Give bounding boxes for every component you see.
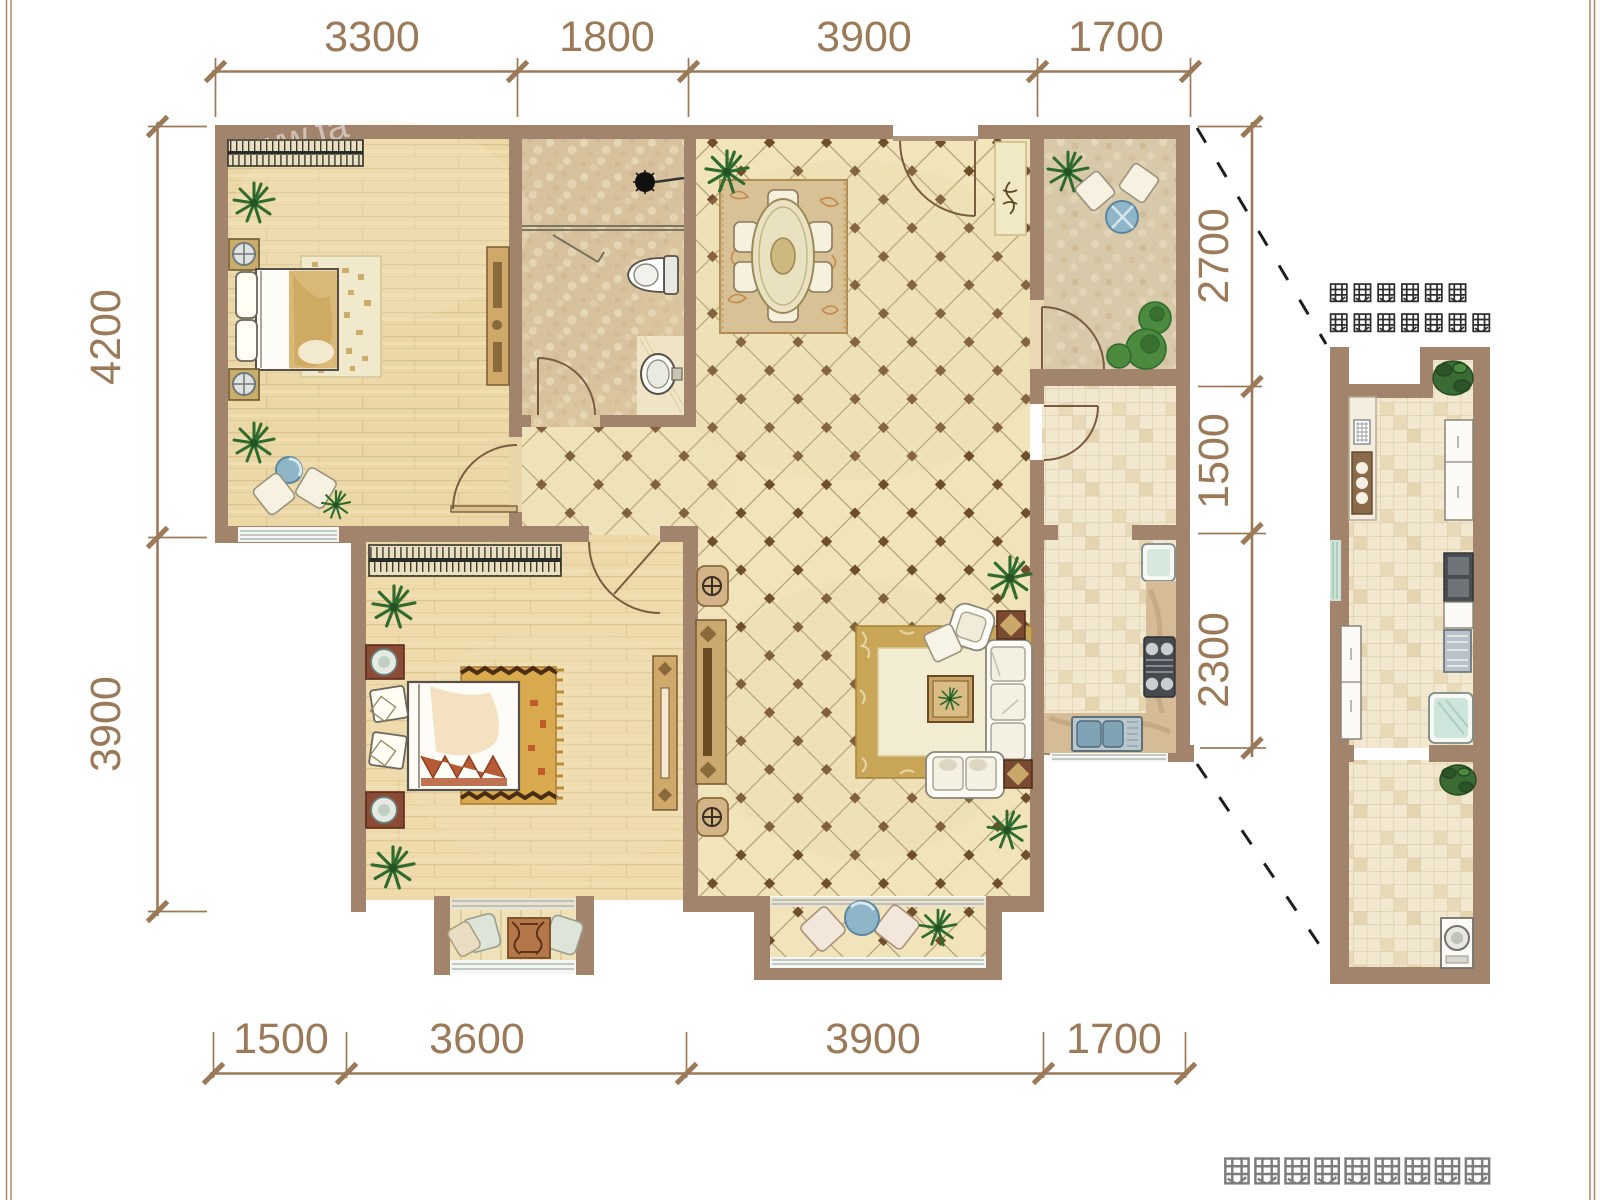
svg-text:4200: 4200 — [82, 289, 130, 385]
svg-text:3900: 3900 — [82, 676, 130, 772]
svg-text:3600: 3600 — [429, 1015, 525, 1063]
svg-text:1700: 1700 — [1068, 13, 1164, 61]
svg-text:3300: 3300 — [324, 13, 420, 61]
svg-text:1500: 1500 — [233, 1015, 329, 1063]
svg-text:1800: 1800 — [559, 13, 655, 61]
svg-text:1700: 1700 — [1066, 1015, 1162, 1063]
svg-text:3900: 3900 — [825, 1015, 921, 1063]
svg-text:2700: 2700 — [1190, 208, 1238, 304]
svg-text:3900: 3900 — [816, 13, 912, 61]
svg-text:1500: 1500 — [1190, 413, 1238, 509]
svg-text:2300: 2300 — [1190, 612, 1238, 708]
